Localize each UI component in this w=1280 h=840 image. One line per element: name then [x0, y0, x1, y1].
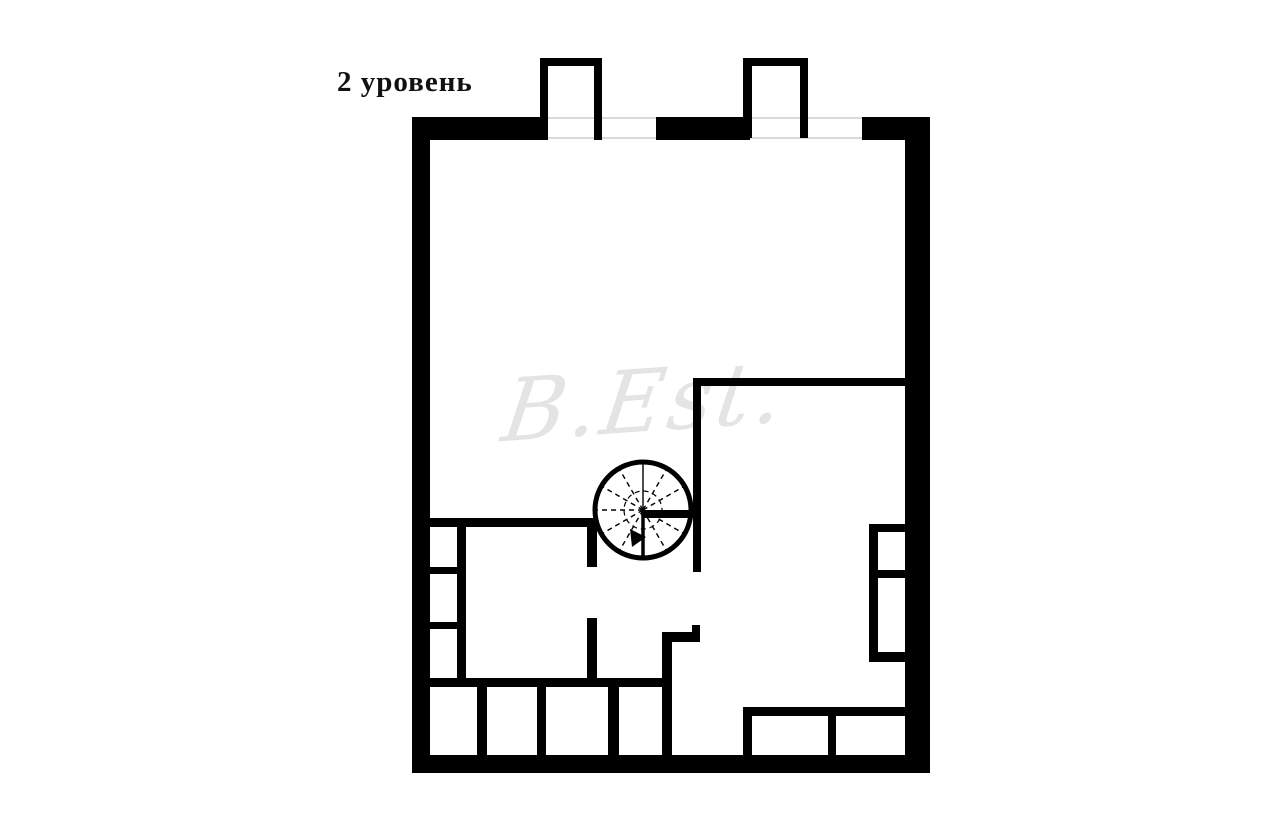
interior-wall-segment: [430, 678, 662, 687]
roof-projection-wall: [743, 58, 808, 66]
interior-wall-segment: [587, 618, 597, 687]
interior-wall-segment: [869, 652, 907, 662]
outer-wall-segment: [412, 117, 430, 773]
interior-wall-segment: [430, 622, 466, 629]
floor-plan-drawing: [0, 0, 1280, 840]
interior-wall-segment: [608, 687, 619, 755]
interior-wall-segment: [743, 707, 907, 716]
interior-wall-segment: [878, 570, 907, 578]
interior-wall-segment: [537, 687, 546, 755]
floor-plan-page: 2 уровень B.Est.: [0, 0, 1280, 840]
roof-projection-wall: [540, 58, 602, 66]
interior-wall-segment: [457, 527, 466, 687]
interior-wall-segment: [743, 707, 752, 755]
roof-projection-wall: [743, 58, 752, 138]
outer-wall-segment: [656, 117, 750, 140]
interior-wall-segment: [430, 567, 466, 574]
interior-wall-segment: [869, 524, 878, 662]
interior-wall-segment: [662, 632, 672, 755]
interior-wall-segment: [697, 378, 905, 386]
outer-wall-segment: [905, 117, 930, 773]
interior-wall-segment: [693, 378, 701, 572]
outer-wall-segment: [412, 755, 930, 773]
roof-projection-wall: [540, 58, 548, 140]
interior-wall-segment: [477, 687, 487, 755]
interior-wall-segment: [430, 518, 590, 527]
roof-projection-wall: [800, 58, 808, 138]
roof-projection-wall: [594, 58, 602, 140]
outer-wall-segment: [412, 117, 545, 140]
interior-wall-segment: [828, 716, 836, 755]
